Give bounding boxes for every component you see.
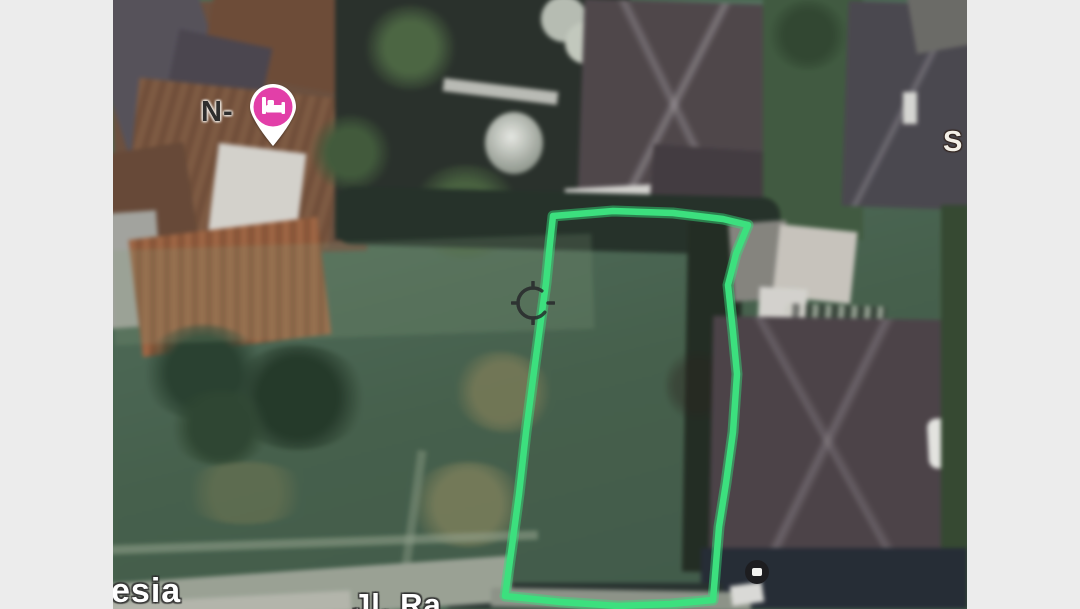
plot-boundary-polygon-glow xyxy=(505,211,748,606)
poi-glyph xyxy=(752,568,762,576)
left-pillarbox xyxy=(0,0,113,609)
satellite-map-view[interactable]: N- S esia Jl. Ra xyxy=(113,0,967,609)
map-overlay-layer: N- S esia Jl. Ra xyxy=(113,0,967,609)
right-pillarbox xyxy=(967,0,1080,609)
crosshair-icon xyxy=(511,281,555,325)
small-poi-icon[interactable] xyxy=(745,560,769,584)
plot-boundary-polygon[interactable] xyxy=(505,211,748,606)
country-watermark-label: esia xyxy=(113,572,181,609)
screenshot-canvas: N- S esia Jl. Ra xyxy=(0,0,1080,609)
poi-name-label[interactable]: N- xyxy=(201,96,234,129)
road-name-label: Jl. Ra xyxy=(353,587,442,609)
street-name-label: S xyxy=(943,126,962,159)
lodging-pin[interactable] xyxy=(245,82,301,148)
